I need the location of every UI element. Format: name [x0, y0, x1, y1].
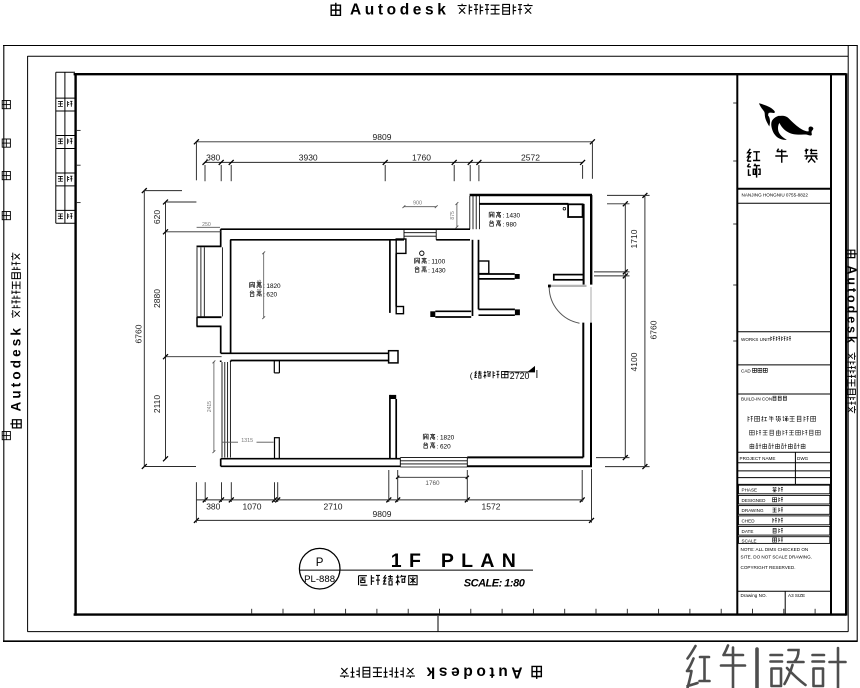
svg-text:3930: 3930 [299, 152, 318, 162]
svg-text:(: ( [470, 371, 473, 381]
svg-text:1365: 1365 [257, 279, 263, 290]
svg-text:Autodesk: Autodesk [8, 325, 23, 411]
svg-text:620: 620 [440, 443, 451, 450]
svg-text:6760: 6760 [649, 320, 659, 339]
svg-text:1100: 1100 [431, 259, 445, 266]
svg-text:BUILD-IN CON: BUILD-IN CON [741, 396, 772, 401]
svg-text:SCALE: SCALE [742, 538, 757, 543]
svg-text:1710: 1710 [629, 229, 639, 248]
svg-text:875: 875 [450, 211, 456, 220]
svg-text:DATE: DATE [742, 529, 754, 534]
svg-text:620: 620 [266, 292, 277, 299]
svg-text::: : [263, 283, 265, 290]
svg-text:1430: 1430 [506, 213, 521, 220]
svg-text:1760: 1760 [412, 152, 431, 162]
svg-text:1820: 1820 [440, 435, 455, 442]
svg-text:COPYRIGHT RESERVED.: COPYRIGHT RESERVED. [741, 565, 796, 570]
svg-text:2880: 2880 [152, 289, 162, 308]
svg-text:A3 SIZE: A3 SIZE [788, 593, 805, 598]
svg-text:900: 900 [413, 201, 422, 207]
svg-text:PROJECT NAME: PROJECT NAME [740, 456, 776, 461]
svg-text:2110: 2110 [152, 395, 162, 414]
svg-text:620: 620 [152, 210, 162, 224]
svg-text::: : [503, 221, 505, 228]
svg-text::: : [437, 435, 439, 442]
svg-text:Drawing NO.: Drawing NO. [741, 593, 767, 598]
svg-text:DESIGNED: DESIGNED [742, 498, 767, 503]
svg-text:9809: 9809 [373, 132, 392, 142]
svg-text:P: P [316, 557, 324, 569]
svg-text:CAD: CAD [741, 368, 751, 373]
svg-text::: : [428, 259, 430, 266]
svg-text::: : [263, 292, 265, 299]
svg-text:4100: 4100 [629, 352, 639, 371]
svg-text:Autodesk: Autodesk [423, 663, 522, 680]
svg-text:SITE. DO NOT SCALE DRAWING.: SITE. DO NOT SCALE DRAWING. [741, 555, 812, 560]
svg-text:1760: 1760 [425, 480, 440, 487]
svg-text:PL-888: PL-888 [304, 574, 335, 585]
svg-text:9809: 9809 [373, 509, 392, 519]
svg-text:380: 380 [206, 501, 220, 511]
svg-text:NOTE: ALL DIMS CHECKED ON: NOTE: ALL DIMS CHECKED ON [741, 547, 809, 552]
svg-text:6760: 6760 [134, 324, 144, 343]
svg-text:DRAWING: DRAWING [742, 508, 764, 513]
svg-text:1572: 1572 [482, 501, 501, 511]
svg-text:1F PLAN: 1F PLAN [391, 550, 523, 572]
svg-text:DWG: DWG [797, 456, 809, 461]
svg-text:SCALE: 1:80: SCALE: 1:80 [464, 577, 526, 589]
svg-text:2710: 2710 [324, 501, 343, 511]
svg-text:2572: 2572 [521, 152, 540, 162]
svg-text:1315: 1315 [241, 438, 253, 444]
svg-text:Autodesk: Autodesk [350, 1, 449, 18]
svg-text:250: 250 [202, 222, 211, 228]
svg-text:1820: 1820 [266, 283, 281, 290]
svg-text:PHASE: PHASE [742, 488, 758, 493]
svg-text:980: 980 [506, 221, 517, 228]
svg-text::: : [503, 213, 505, 220]
svg-text:NANJING HONGNIU 0755-8822: NANJING HONGNIU 0755-8822 [742, 193, 809, 198]
svg-text:1070: 1070 [243, 501, 262, 511]
svg-text::: : [437, 443, 439, 450]
svg-text:380: 380 [206, 152, 220, 162]
svg-text:WORKS UNIT: WORKS UNIT [741, 337, 771, 342]
svg-text::: : [428, 267, 430, 274]
svg-text:1430: 1430 [431, 267, 446, 274]
svg-text:CHED: CHED [742, 519, 756, 524]
svg-text:2415: 2415 [207, 401, 213, 412]
svg-text:2720: 2720 [510, 371, 530, 381]
